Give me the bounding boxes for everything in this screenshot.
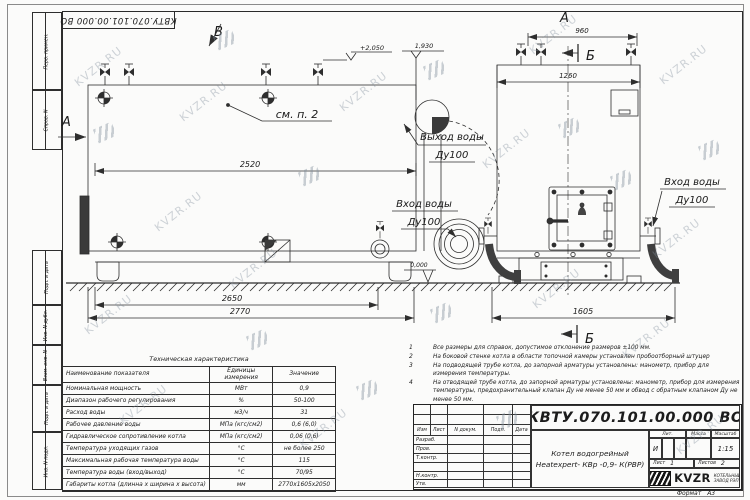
lit-value: И [649, 438, 662, 459]
elev-ground: 0,000 [410, 262, 427, 269]
drawing-sheet: { "watermark": { "text": "KVZR.RU" }, "f… [0, 0, 750, 500]
callout-water-inlet-main: Вход воды Ду100 [392, 199, 458, 237]
view-label-b-top: В [214, 25, 223, 40]
revision-row [414, 405, 531, 415]
svg-text:Выход воды: Выход воды [420, 132, 484, 143]
spec-row: Габариты котла (длинна х ширина х высота… [63, 479, 335, 491]
company-cell: KVZR КОТЕЛЬНЫЙ ЗАВОД РЭП [649, 468, 740, 488]
svg-text:Ду100: Ду100 [407, 217, 441, 228]
revision-header-row: Изм Лист N докум. Подп. Дата [414, 425, 531, 436]
see-note-callout: см. п. 2 [276, 108, 319, 121]
spec-row: Температура воды (вход/выход)°С70/95 [63, 467, 335, 479]
view-label-a-side: А [61, 115, 71, 130]
dim-2520: 2520 [240, 160, 260, 169]
section-label-b-top: Б [586, 49, 595, 64]
dim-2650: 2650 [222, 294, 242, 303]
note-item: 3На подводящей трубе котла, до запорной … [404, 362, 740, 378]
dim-1260: 1260 [559, 72, 577, 80]
lit-header: Лит. [649, 430, 686, 438]
spec-row: Гидравлическое сопротивление котлаМПа (к… [63, 431, 335, 443]
kvzr-logo-text: KVZR [674, 471, 711, 485]
spec-header-value: Значение [273, 367, 335, 382]
dim-960: 960 [575, 27, 589, 35]
role-row [414, 463, 531, 472]
notes-list: 1Все размеры для справок, допустимое отк… [404, 344, 740, 405]
mass-value [686, 438, 711, 459]
spec-row: Расход водым3/ч31 [63, 407, 335, 419]
note-item: 2На боковой стенке котла в области топоч… [404, 353, 740, 361]
titleblock-designation: КВТУ.070.101.00.000 ВО [531, 405, 740, 430]
svg-text:Ду100: Ду100 [675, 195, 709, 206]
note-item: 1Все размеры для справок, допустимое отк… [404, 344, 740, 352]
spec-header-units: Единицы измерения [210, 367, 274, 382]
callout-water-inlet-end: Вход воды Ду100 [653, 177, 726, 226]
spec-row: Диапазон рабочего регулирования%50-100 [63, 395, 335, 407]
revision-row [414, 415, 531, 425]
svg-text:Вход воды: Вход воды [664, 177, 720, 188]
dim-1605: 1605 [573, 307, 593, 316]
spec-table: Техническая характеристика Наименование … [62, 355, 336, 492]
spec-row: Номинальная мощностьМВт0,9 [63, 383, 335, 395]
main-view: см. п. 2 2520 +2,050 1,930 0,000 [58, 24, 680, 323]
spec-row: Максимальная рабочая температура воды°С1… [63, 455, 335, 467]
spec-row: Рабочее давление водыМПа (кгс/см2)0,6 (6… [63, 419, 335, 431]
role-row: Пров. [414, 445, 531, 454]
scale-value: 1:15 [711, 438, 740, 459]
titleblock-product-name: Котел водогрейный Heatexpert- КВр -0,9- … [531, 430, 649, 488]
company-name: КОТЕЛЬНЫЙ ЗАВОД РЭП [714, 473, 740, 484]
ground-hatch [70, 283, 672, 291]
sheet-cell: Лист1 [649, 459, 694, 468]
spec-table-title: Техническая характеристика [62, 355, 336, 366]
spec-header-name: Наименование показателя [63, 367, 210, 382]
spec-header-row: Наименование показателя Единицы измерени… [63, 367, 335, 383]
end-view: А 960 Б 1260 [479, 11, 679, 347]
dim-2770: 2770 [230, 307, 250, 316]
inlet-branch-axial [434, 219, 484, 269]
kvzr-logo-icon [649, 471, 671, 486]
role-row: Н.контр. [414, 472, 531, 480]
mass-header: Масса [686, 430, 711, 438]
role-row: Утв. [414, 480, 531, 488]
svg-text:Ду100: Ду100 [435, 150, 469, 161]
svg-text:Вход воды: Вход воды [396, 199, 452, 210]
spec-row: Температура уходящих газов°Сне более 250 [63, 443, 335, 455]
role-row: Т.контр. [414, 454, 531, 463]
scale-header: Масштаб [711, 430, 740, 438]
sheets-cell: Листов2 [694, 459, 740, 468]
view-label-a-end: А [559, 11, 569, 26]
title-block: Изм Лист N докум. Подп. Дата Разраб. Про… [413, 404, 742, 490]
elev-top: +2,050 [360, 44, 384, 52]
format-note: ФорматА3 [648, 490, 744, 497]
elev-flue: 1,930 [415, 42, 434, 50]
note-item: 4На отводящей трубе котла, до запорной а… [404, 379, 740, 403]
role-row: Разраб. [414, 436, 531, 445]
